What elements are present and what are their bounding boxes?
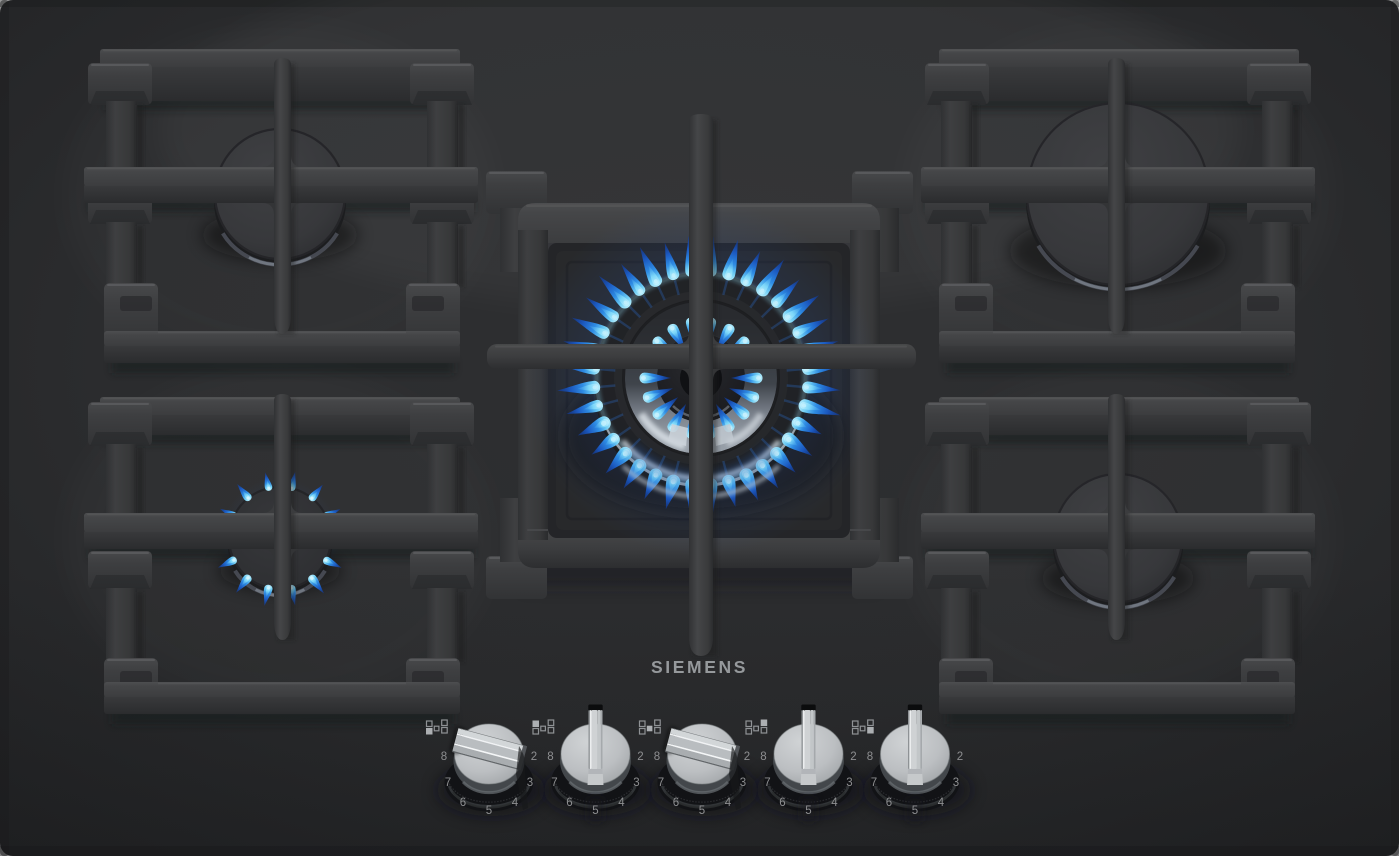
- svg-text:5: 5: [805, 805, 811, 817]
- svg-text:6: 6: [566, 797, 572, 809]
- svg-text:5: 5: [699, 805, 705, 817]
- svg-text:7: 7: [658, 777, 664, 789]
- svg-text:2: 2: [957, 751, 963, 763]
- svg-text:3: 3: [527, 777, 533, 789]
- svg-text:7: 7: [871, 777, 877, 789]
- svg-text:5: 5: [912, 805, 918, 817]
- svg-text:2: 2: [637, 751, 643, 763]
- svg-text:2: 2: [850, 751, 856, 763]
- svg-text:7: 7: [764, 777, 770, 789]
- svg-text:8: 8: [654, 751, 660, 763]
- svg-text:4: 4: [938, 797, 945, 809]
- svg-text:3: 3: [633, 777, 639, 789]
- svg-text:8: 8: [867, 751, 873, 763]
- svg-text:4: 4: [618, 797, 625, 809]
- svg-text:3: 3: [846, 777, 852, 789]
- svg-text:3: 3: [740, 777, 746, 789]
- svg-text:6: 6: [886, 797, 892, 809]
- svg-text:SIEMENS: SIEMENS: [651, 657, 748, 677]
- svg-text:8: 8: [441, 751, 447, 763]
- svg-text:8: 8: [760, 751, 766, 763]
- svg-text:4: 4: [831, 797, 838, 809]
- svg-text:2: 2: [531, 751, 537, 763]
- svg-text:4: 4: [725, 797, 732, 809]
- svg-text:8: 8: [547, 751, 553, 763]
- svg-text:6: 6: [673, 797, 679, 809]
- svg-text:7: 7: [445, 777, 451, 789]
- svg-text:5: 5: [486, 805, 492, 817]
- svg-text:7: 7: [551, 777, 557, 789]
- svg-text:2: 2: [744, 751, 750, 763]
- svg-text:3: 3: [953, 777, 959, 789]
- svg-text:4: 4: [512, 797, 519, 809]
- svg-text:6: 6: [460, 797, 466, 809]
- svg-text:5: 5: [592, 805, 598, 817]
- svg-text:6: 6: [779, 797, 785, 809]
